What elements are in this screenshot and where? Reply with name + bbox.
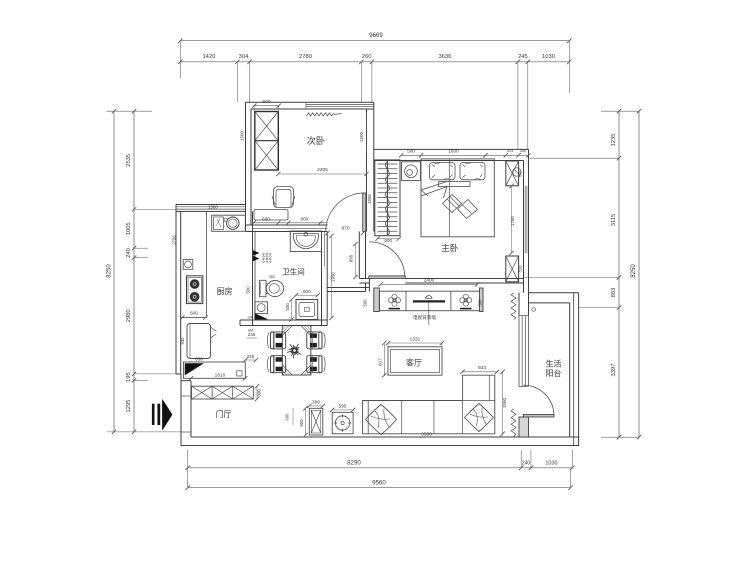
svg-text:260: 260 [362, 54, 372, 60]
svg-text:1030: 1030 [545, 461, 557, 467]
svg-text:2780: 2780 [299, 54, 312, 60]
svg-text:8250: 8250 [631, 264, 637, 278]
svg-text:卫生间: 卫生间 [282, 267, 305, 277]
svg-text:9560: 9560 [372, 479, 386, 486]
svg-text:3397: 3397 [611, 364, 617, 377]
svg-text:600: 600 [299, 419, 304, 427]
svg-text:360: 360 [269, 275, 275, 279]
svg-text:870: 870 [341, 226, 349, 232]
svg-text:313: 313 [507, 148, 514, 153]
svg-text:1610: 1610 [215, 373, 226, 379]
svg-text:600: 600 [262, 217, 270, 222]
svg-text:2980: 2980 [126, 309, 132, 322]
svg-text:1420: 1420 [202, 54, 215, 60]
svg-text:630: 630 [518, 170, 523, 177]
svg-text:530: 530 [518, 265, 523, 272]
svg-text:1500: 1500 [240, 130, 245, 141]
svg-text:1005: 1005 [126, 222, 132, 235]
svg-text:300: 300 [257, 389, 262, 397]
svg-text:1030: 1030 [542, 54, 555, 60]
svg-text:厨房: 厨房 [217, 286, 233, 296]
svg-text:600: 600 [262, 99, 270, 105]
svg-text:500: 500 [246, 286, 251, 294]
svg-text:2400: 2400 [424, 277, 435, 283]
svg-text:600: 600 [285, 413, 290, 421]
svg-text:530: 530 [285, 303, 290, 311]
svg-text:350: 350 [520, 148, 527, 153]
svg-text:1380: 1380 [208, 205, 218, 210]
svg-text:1885: 1885 [367, 194, 372, 204]
svg-text:803: 803 [611, 288, 617, 298]
svg-text:500: 500 [478, 299, 483, 307]
svg-text:电视背景墙: 电视背景墙 [413, 314, 436, 321]
svg-text:300: 300 [312, 399, 320, 404]
svg-text:235: 235 [247, 354, 255, 359]
svg-text:1500: 1500 [359, 131, 364, 142]
svg-text:客厅: 客厅 [406, 358, 422, 368]
svg-text:3630: 3630 [438, 54, 451, 60]
svg-text:595: 595 [339, 403, 347, 408]
svg-text:9669: 9669 [369, 32, 383, 39]
svg-text:500: 500 [407, 148, 415, 153]
svg-text:240: 240 [522, 461, 531, 467]
svg-text:8250: 8250 [107, 264, 113, 278]
svg-text:2756: 2756 [171, 235, 176, 245]
svg-text:933: 933 [478, 365, 486, 371]
svg-text:1560: 1560 [502, 397, 507, 408]
svg-text:195: 195 [126, 372, 132, 382]
svg-text:240: 240 [126, 248, 132, 258]
svg-text:3115: 3115 [611, 214, 617, 226]
svg-text:600: 600 [190, 311, 198, 317]
svg-text:304: 304 [239, 54, 249, 60]
svg-text:≤M: ≤M [248, 329, 253, 333]
svg-text:636: 636 [195, 357, 203, 362]
svg-text:≤M: ≤M [248, 316, 253, 320]
svg-text:1295: 1295 [126, 400, 132, 413]
svg-text:930: 930 [180, 337, 185, 345]
svg-text:245: 245 [518, 54, 528, 60]
svg-text:895: 895 [349, 254, 354, 262]
svg-text:800: 800 [300, 217, 308, 222]
svg-text:1950: 1950 [331, 272, 336, 282]
svg-text:主卧: 主卧 [441, 243, 459, 253]
svg-text:1760: 1760 [510, 216, 515, 226]
svg-text:235: 235 [248, 332, 256, 337]
svg-text:8290: 8290 [347, 460, 361, 467]
svg-text:817: 817 [378, 358, 383, 366]
svg-text:1331: 1331 [410, 336, 421, 342]
svg-text:1235: 1235 [611, 134, 617, 147]
svg-text:600: 600 [303, 289, 311, 294]
svg-text:1600: 1600 [448, 148, 459, 153]
svg-text:次卧: 次卧 [307, 135, 325, 146]
svg-text:生活: 生活 [546, 359, 562, 369]
svg-text:3500: 3500 [421, 431, 432, 437]
svg-text:阳台: 阳台 [546, 368, 562, 378]
svg-text:2205: 2205 [317, 167, 328, 173]
svg-text:门厅: 门厅 [216, 409, 232, 419]
svg-text:2535: 2535 [126, 154, 132, 167]
svg-text:500: 500 [362, 299, 367, 307]
svg-text:600: 600 [384, 238, 392, 243]
